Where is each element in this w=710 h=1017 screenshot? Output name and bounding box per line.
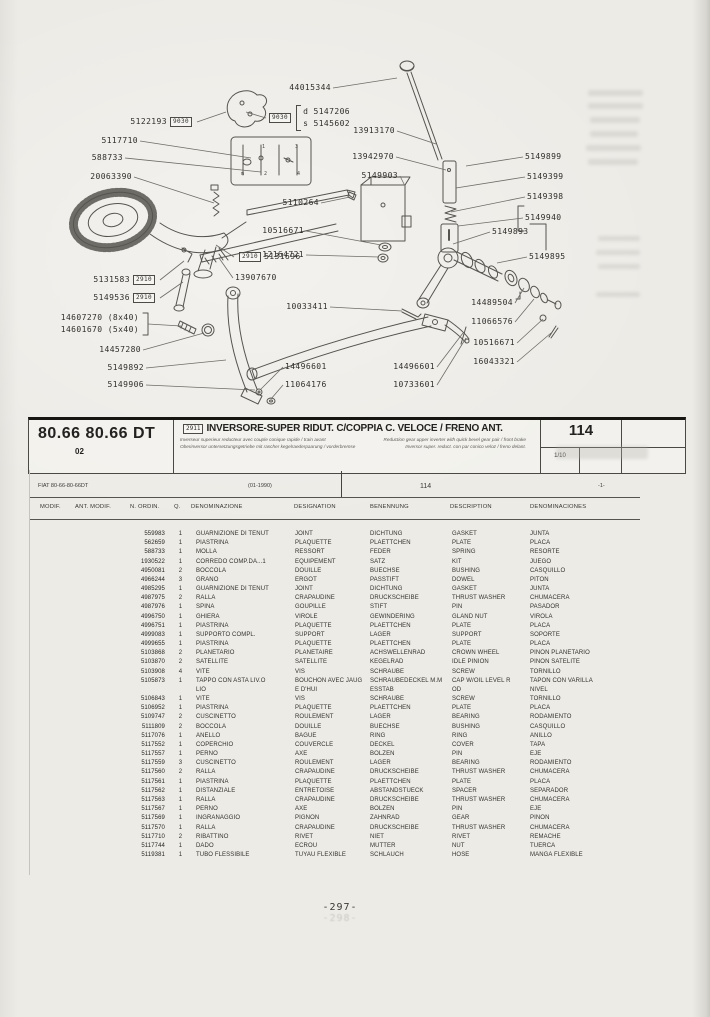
cell-benennung: LAGER xyxy=(370,759,452,768)
cell-n-ordin: 5117567 xyxy=(30,805,165,814)
cell-benennung: NIET xyxy=(370,833,452,842)
cell-n-ordin: 4985295 xyxy=(30,585,165,594)
cell-denominaciones: JUNTA xyxy=(530,585,684,594)
part-label-10516671: 10516671 xyxy=(473,338,515,348)
cell-denominazione: PERNO xyxy=(196,750,295,759)
cell-designation: PLAQUETTE xyxy=(295,640,370,649)
cell-denominaciones: PLACA xyxy=(530,622,684,631)
cell-denominazione: RALLA xyxy=(196,594,295,603)
cell-n-ordin: 559983 xyxy=(30,530,165,539)
cell-benennung: GEWINDERING xyxy=(370,613,452,622)
cell-n-ordin: 4950081 xyxy=(30,567,165,576)
cell-n-ordin: 4966244 xyxy=(30,576,165,585)
cell-n-ordin: 5117570 xyxy=(30,824,165,833)
subtitle-es: Inversor super. reduct. con par conico v… xyxy=(405,443,526,450)
subheader-index: -1- xyxy=(598,483,605,489)
cell-n-ordin: 588733 xyxy=(30,548,165,557)
cell-designation: BAGUE xyxy=(295,732,370,741)
cell-qty: 1 xyxy=(165,814,196,823)
part-label-13913170: 13913170 xyxy=(353,126,395,136)
part-label-1: 1 xyxy=(262,142,265,152)
cell-n-ordin: 5111809 xyxy=(30,723,165,732)
part-label-5149906: 5149906 xyxy=(107,380,144,390)
cell-description: PIN xyxy=(452,750,530,759)
cell-denominaciones: EJE xyxy=(530,805,684,814)
cell-benennung: DECKEL xyxy=(370,741,452,750)
cell-denominazione: PIASTRINA xyxy=(196,704,295,713)
cell-designation: ROULEMENT xyxy=(295,713,370,722)
cell-designation: CRAPAUDINE xyxy=(295,594,370,603)
cell-designation: CRAPAUDINE xyxy=(295,824,370,833)
cell-designation: EQUIPEMENT xyxy=(295,558,370,567)
cell-description: THRUST WASHER xyxy=(452,796,530,805)
cell-qty: 1 xyxy=(165,530,196,539)
table-row: 49879761SPINAGOUPILLESTIFTPINPASADOR xyxy=(30,603,684,612)
rule-header xyxy=(30,519,640,520)
part-label-5117710: 5117710 xyxy=(101,136,138,146)
cell-benennung: SCHLAUCH xyxy=(370,851,452,860)
table-row: 51175701RALLACRAPAUDINEDRUCKSCHEIBETHRUS… xyxy=(30,824,684,833)
cell-n-ordin: 4987976 xyxy=(30,603,165,612)
cell-description: BEARING xyxy=(452,759,530,768)
subheader-model: FIAT 80-66-80-66DT xyxy=(38,483,88,489)
column-header-designation: DESIGNATION xyxy=(294,504,336,510)
cell-designation: ERGOT xyxy=(295,576,370,585)
catalog-page: 4401534451221939030511771058873320063390… xyxy=(0,0,710,1017)
cell-qty: 2 xyxy=(165,594,196,603)
cell-designation: RIVET xyxy=(295,833,370,842)
cell-denominaciones: TORNILLO xyxy=(530,668,684,677)
cell-benennung: DICHTUNG xyxy=(370,585,452,594)
cell-denominaciones: TAPA xyxy=(530,741,684,750)
table-row: 51118092BOCCOLADOUILLEBUECHSEBUSHINGCASQ… xyxy=(30,723,684,732)
cell-denominaciones: PINON xyxy=(530,814,684,823)
ghost-smudge xyxy=(596,292,640,297)
cell-description: SUPPORT xyxy=(452,631,530,640)
cell-description: SCREW xyxy=(452,695,530,704)
cell-benennung: BOLZEN xyxy=(370,750,452,759)
table-row: 49996551PIASTRINAPLAQUETTEPLAETTCHENPLAT… xyxy=(30,640,684,649)
cell-denominazione: PIASTRINA xyxy=(196,539,295,548)
cell-benennung: BUECHSE xyxy=(370,723,452,732)
cell-description: NUT xyxy=(452,842,530,851)
cell-qty: 1 xyxy=(165,539,196,548)
bracket-casting-drawing xyxy=(227,91,266,127)
cell-designation: SATELLITE xyxy=(295,658,370,667)
ghost-smudge xyxy=(586,145,641,151)
cell-designation: AXE xyxy=(295,805,370,814)
cell-benennung: PLAETTCHEN xyxy=(370,704,452,713)
cell-description: PIN xyxy=(452,603,530,612)
cell-n-ordin: 5117560 xyxy=(30,768,165,777)
cell-denominazione: VITE xyxy=(196,695,295,704)
table-row: 51177102RIBATTINORIVETNIETRIVETREMACHE xyxy=(30,833,684,842)
cell-description: THRUST WASHER xyxy=(452,824,530,833)
table-row: 49967511PIASTRINAPLAQUETTEPLAETTCHENPLAT… xyxy=(30,622,684,631)
cell-denominazione: PIASTRINA xyxy=(196,622,295,631)
part-label-5149892: 5149892 xyxy=(107,363,144,373)
table-header: MODIF.ANT. MODIF.N. ORDIN.Q.DENOMINAZION… xyxy=(30,504,684,514)
cell-denominaciones: PINON SATELITE xyxy=(530,658,684,667)
cell-designation: PLAQUETTE xyxy=(295,622,370,631)
cell-qty: 3 xyxy=(165,759,196,768)
table-row: 51039084VITEVISSCHRAUBESCREWTORNILLO xyxy=(30,668,684,677)
column-tick xyxy=(341,471,342,497)
cell-qty: 1 xyxy=(165,824,196,833)
ghost-smudge xyxy=(590,117,640,123)
cell-description: HOSE xyxy=(452,851,530,860)
part-label-13907670: 13907670 xyxy=(235,273,277,283)
cell-denominazione: PERNO xyxy=(196,805,295,814)
rule-top xyxy=(30,497,640,498)
cell-description: SPACER xyxy=(452,787,530,796)
gear-sleeve-drawing xyxy=(68,185,157,254)
cell-denominaciones: ANILLO xyxy=(530,732,684,741)
cell-denominaciones: MANGA FLEXIBLE xyxy=(530,851,684,860)
cell-benennung: LAGER xyxy=(370,631,452,640)
cell-benennung: SATZ xyxy=(370,558,452,567)
cell-benennung: BOLZEN xyxy=(370,805,452,814)
cell-description: CROWN WHEEL xyxy=(452,649,530,658)
part-label-5149903: 5149903 xyxy=(361,171,398,181)
part-label-11064176: 11064176 xyxy=(285,380,327,390)
cell-designation: ECROU xyxy=(295,842,370,851)
part-label-588733: 588733 xyxy=(92,153,123,163)
cell-qty: 1 xyxy=(165,558,196,567)
part-label-13942970: 13942970 xyxy=(352,152,394,162)
cell-n-ordin: 5103868 xyxy=(30,649,165,658)
table-row: 51175602RALLACRAPAUDINEDRUCKSCHEIBETHRUS… xyxy=(30,768,684,777)
cell-description: SCREW xyxy=(452,668,530,677)
cell-denominaciones: PASADOR xyxy=(530,603,684,612)
cell-designation: VIROLE xyxy=(295,613,370,622)
part-label-11066576: 11066576 xyxy=(471,317,513,327)
ghost-smudge xyxy=(598,264,640,269)
cell-denominaciones: PLACA xyxy=(530,640,684,649)
cell-description: THRUST WASHER xyxy=(452,768,530,777)
cell-description: DOWEL xyxy=(452,576,530,585)
cell-n-ordin: 4987975 xyxy=(30,594,165,603)
table-row: 51175571PERNOAXEBOLZENPINEJE xyxy=(30,750,684,759)
cell-benennung: ABSTANDSTUECK xyxy=(370,787,452,796)
table-row: 51170761ANELLOBAGUERINGRINGANILLO xyxy=(30,732,684,741)
cell-benennung: SCHRAUBE xyxy=(370,695,452,704)
cell-description: BUSHING xyxy=(452,723,530,732)
cell-designation: DOUILLE xyxy=(295,723,370,732)
table-row: 51058731TAPPO CON ASTA LIV.O LIOBOUCHON … xyxy=(30,677,684,695)
cell-designation: CRAPAUDINE xyxy=(295,768,370,777)
variant-bracket xyxy=(296,105,301,131)
ref-box-2910: 2910 xyxy=(239,252,261,262)
cell-benennung: FEDER xyxy=(370,548,452,557)
column-header-benennung: BENENNUNG xyxy=(370,504,409,510)
cell-qty: 1 xyxy=(165,622,196,631)
cell-n-ordin: 5117552 xyxy=(30,741,165,750)
subheader-date: (01-1990) xyxy=(248,483,272,489)
cell-denominazione: CUSCINETTO xyxy=(196,759,295,768)
table-row: 51069521PIASTRINAPLAQUETTEPLAETTCHENPLAT… xyxy=(30,704,684,713)
cell-qty: 1 xyxy=(165,805,196,814)
cell-designation: SUPPORT xyxy=(295,631,370,640)
ghost-smudge xyxy=(588,159,638,165)
cell-n-ordin: 5117557 xyxy=(30,750,165,759)
cell-denominazione: MOLLA xyxy=(196,548,295,557)
cell-benennung: ZAHNRAD xyxy=(370,814,452,823)
subtitle-en: Reduction gear upper inverter with quick… xyxy=(383,436,526,443)
cell-qty: 1 xyxy=(165,778,196,787)
cell-n-ordin: 5106843 xyxy=(30,695,165,704)
table-row: 49662443GRANOERGOTPASSTIFTDOWELPITON xyxy=(30,576,684,585)
part-label-146016705x40: 14601670 (5x40) xyxy=(61,325,139,335)
parts-table: 5599831GUARNIZIONE DI TENUTJOINTDICHTUNG… xyxy=(30,530,684,860)
ref-box-2910: 2910 xyxy=(133,293,155,303)
cell-n-ordin: 5117569 xyxy=(30,814,165,823)
cell-qty: 1 xyxy=(165,796,196,805)
cell-denominazione: RALLA xyxy=(196,796,295,805)
cell-description: GLAND NUT xyxy=(452,613,530,622)
cell-benennung: PLAETTCHEN xyxy=(370,778,452,787)
cell-denominazione: SUPPORTO COMPL. xyxy=(196,631,295,640)
cell-benennung: PLAETTCHEN xyxy=(370,539,452,548)
cell-description: PLATE xyxy=(452,640,530,649)
cell-designation: TUYAU FLEXIBLE xyxy=(295,851,370,860)
part-label-5110264: 5110264 xyxy=(282,198,319,208)
cell-description: BUSHING xyxy=(452,567,530,576)
cell-qty: 2 xyxy=(165,567,196,576)
table-row: 51175593CUSCINETTOROULEMENTLAGERBEARINGR… xyxy=(30,759,684,768)
cell-denominaciones: RODAMIENTO xyxy=(530,713,684,722)
table-row: 51068431VITEVISSCHRAUBESCREWTORNILLO xyxy=(30,695,684,704)
cell-benennung: KEGELRAD xyxy=(370,658,452,667)
cell-qty: 1 xyxy=(165,732,196,741)
ref-box-2910: 2910 xyxy=(133,275,155,285)
ghost-smudge xyxy=(588,90,643,96)
cell-denominazione: PLANETARIO xyxy=(196,649,295,658)
cell-denominazione: SATELLITE xyxy=(196,658,295,667)
part-label-14489504: 14489504 xyxy=(471,298,513,308)
cell-benennung: PASSTIFT xyxy=(370,576,452,585)
cell-denominazione: GHIERA xyxy=(196,613,295,622)
cell-n-ordin: 5106952 xyxy=(30,704,165,713)
cell-denominazione: DISTANZIALE xyxy=(196,787,295,796)
table-row: 51038682PLANETARIOPLANETAIREACHSWELLENRA… xyxy=(30,649,684,658)
subheader-page: 114 xyxy=(420,483,431,490)
cell-designation: DOUILLE xyxy=(295,567,370,576)
part-label-14496601: 14496601 xyxy=(393,362,435,372)
cell-qty: 4 xyxy=(165,668,196,677)
part-label-5149899: 5149899 xyxy=(525,152,562,162)
cell-benennung: STIFT xyxy=(370,603,452,612)
column-header-antmodif: ANT. MODIF. xyxy=(75,504,111,510)
part-label-146072708x40: 14607270 (8x40) xyxy=(61,313,139,323)
column-header-modif: MODIF. xyxy=(40,504,61,510)
cell-designation: PLAQUETTE xyxy=(295,778,370,787)
cell-denominazione: SPINA xyxy=(196,603,295,612)
cell-designation: JOINT xyxy=(295,585,370,594)
cell-n-ordin: 562659 xyxy=(30,539,165,548)
cell-description: GASKET xyxy=(452,530,530,539)
table-row: 51175691INGRANAGGIOPIGNONZAHNRADGEARPINO… xyxy=(30,814,684,823)
cell-designation: VIS xyxy=(295,695,370,704)
cell-denominazione: DADO xyxy=(196,842,295,851)
cell-qty: 1 xyxy=(165,741,196,750)
cell-denominaciones: EJE xyxy=(530,750,684,759)
cell-description: COVER xyxy=(452,741,530,750)
cell-qty: 2 xyxy=(165,649,196,658)
table-row: 49852951GUARNIZIONE DI TENUTJOINTDICHTUN… xyxy=(30,585,684,594)
cell-denominazione: BOCCOLA xyxy=(196,723,295,732)
cell-description: RIVET xyxy=(452,833,530,842)
cell-qty: 1 xyxy=(165,677,196,695)
column-header-denominaciones: DENOMINACIONES xyxy=(530,504,586,510)
cell-designation: PLAQUETTE xyxy=(295,539,370,548)
cell-qty: 1 xyxy=(165,842,196,851)
cell-denominaciones: PITON xyxy=(530,576,684,585)
cell-benennung: LAGER xyxy=(370,713,452,722)
table-row: 51038702SATELLITESATELLITEKEGELRADIDLE P… xyxy=(30,658,684,667)
cell-description: CAP W/OIL LEVEL R OD xyxy=(452,677,530,695)
part-label-3: 3 xyxy=(295,142,298,152)
subheader-row: FIAT 80-66-80-66DT (01-1990) 114 -1- xyxy=(0,483,710,493)
cell-denominaciones: VIROLA xyxy=(530,613,684,622)
column-header-q: Q. xyxy=(174,504,181,510)
cell-qty: 1 xyxy=(165,695,196,704)
cell-n-ordin: 4996750 xyxy=(30,613,165,622)
cell-denominazione: TUBO FLESSIBILE xyxy=(196,851,295,860)
model-code: 02 xyxy=(75,447,84,456)
shift-fork-drawing xyxy=(150,222,246,278)
column-header-denominazione: DENOMINAZIONE xyxy=(191,504,243,510)
cell-description: THRUST WASHER xyxy=(452,594,530,603)
cell-qty: 1 xyxy=(165,585,196,594)
cell-designation: JOINT xyxy=(295,530,370,539)
part-label-10516671: 10516671 xyxy=(262,226,304,236)
cell-benennung: RING xyxy=(370,732,452,741)
part-label-m: m xyxy=(241,169,244,179)
cell-description: SPRING xyxy=(452,548,530,557)
part-label-5149536: 51495362910 xyxy=(93,293,158,303)
cell-designation: GOUPILLE xyxy=(295,603,370,612)
part-label-2: 2 xyxy=(264,169,267,179)
cell-denominaciones: PLACA xyxy=(530,778,684,787)
cell-designation: ROULEMENT xyxy=(295,759,370,768)
cell-n-ordin: 5103870 xyxy=(30,658,165,667)
cell-qty: 1 xyxy=(165,787,196,796)
ghost-smudge xyxy=(598,236,640,241)
cell-qty: 1 xyxy=(165,613,196,622)
variant-part-group: 9030 d 5147206 s 5145602 xyxy=(266,105,350,131)
part-label-16043321: 16043321 xyxy=(473,357,515,367)
part-label-5149895: 5149895 xyxy=(529,252,566,262)
part-label-14496601: 14496601 xyxy=(285,362,327,372)
valve-body-drawing xyxy=(348,177,411,262)
cell-benennung: PLAETTCHEN xyxy=(370,622,452,631)
table-number: 114 xyxy=(541,422,621,439)
cell-denominazione: INGRANAGGIO xyxy=(196,814,295,823)
cell-description: GEAR xyxy=(452,814,530,823)
part-label-4: 4 xyxy=(297,169,300,179)
cell-qty: 2 xyxy=(165,713,196,722)
cell-denominazione: PIASTRINA xyxy=(196,778,295,787)
cell-designation: AXE xyxy=(295,750,370,759)
ref-box-2911: 2911 xyxy=(183,424,203,434)
table-row: 51175611PIASTRINAPLAQUETTEPLAETTCHENPLAT… xyxy=(30,778,684,787)
cell-qty: 1 xyxy=(165,704,196,713)
cell-description: KIT xyxy=(452,558,530,567)
cell-denominaciones: TORNILLO xyxy=(530,695,684,704)
cell-qty: 1 xyxy=(165,851,196,860)
page-number: -297- xyxy=(0,902,680,913)
ghost-smudge xyxy=(588,103,643,109)
cell-denominaciones: JUEGO xyxy=(530,558,684,567)
cell-denominaciones: RODAMIENTO xyxy=(530,759,684,768)
subtitle-fr: Inverseur superieur reducteur avec coupl… xyxy=(180,436,326,443)
cell-benennung: MUTTER xyxy=(370,842,452,851)
cell-n-ordin: 5117710 xyxy=(30,833,165,842)
cell-denominazione: CORREDO COMP.DA...1 xyxy=(196,558,295,567)
cell-description: GASKET xyxy=(452,585,530,594)
part-label-5131696: 29105131696 xyxy=(236,252,301,262)
cell-designation: BOUCHON AVEC JAUG E D'HUI xyxy=(295,677,370,695)
cell-denominazione: GRANO xyxy=(196,576,295,585)
table-row: 51175521COPERCHIOCOUVERCLEDECKELCOVERTAP… xyxy=(30,741,684,750)
table-row: 5626591PIASTRINAPLAQUETTEPLAETTCHENPLATE… xyxy=(30,539,684,548)
table-row: 51175621DISTANZIALEENTRETOISEABSTANDSTUE… xyxy=(30,787,684,796)
cell-description: PLATE xyxy=(452,778,530,787)
table-row: 51175631RALLACRAPAUDINEDRUCKSCHEIBETHRUS… xyxy=(30,796,684,805)
part-label-10033411: 10033411 xyxy=(286,302,328,312)
cell-qty: 1 xyxy=(165,750,196,759)
table-row: 49500812BOCCOLADOUILLEBUECHSEBUSHINGCASQ… xyxy=(30,567,684,576)
model-cell: 80.66 80.66 DT 02 xyxy=(29,420,173,473)
table-row: 19305221CORREDO COMP.DA...1EQUIPEMENTSAT… xyxy=(30,558,684,567)
cell-description: IDLE PINION xyxy=(452,658,530,667)
cell-denominaciones: TUERCA xyxy=(530,842,684,851)
cell-denominaciones: JUNTA xyxy=(530,530,684,539)
part-label-5149940: 5149940 xyxy=(525,213,562,223)
column-header-nordin: N. ORDIN. xyxy=(130,504,160,510)
column-header-description: DESCRIPTION xyxy=(450,504,492,510)
part-label-5122193: 51221939030 xyxy=(130,117,195,127)
subtitle-de: Oberinversor untersetzungsgetriebe mit r… xyxy=(180,443,355,450)
cell-benennung: DRUCKSCHEIBE xyxy=(370,594,452,603)
ref-box-9030: 9030 xyxy=(170,117,192,127)
cell-denominazione: CUSCINETTO xyxy=(196,713,295,722)
cell-qty: 1 xyxy=(165,640,196,649)
cell-n-ordin: 4999655 xyxy=(30,640,165,649)
cell-denominaciones: CHUMACERA xyxy=(530,594,684,603)
table-row: 51193811TUBO FLESSIBILETUYAU FLEXIBLESCH… xyxy=(30,851,684,860)
cell-denominazione: PIASTRINA xyxy=(196,640,295,649)
cell-denominazione: COPERCHIO xyxy=(196,741,295,750)
cell-n-ordin: 4996751 xyxy=(30,622,165,631)
cell-denominazione: VITE xyxy=(196,668,295,677)
cell-designation: PLAQUETTE xyxy=(295,704,370,713)
cell-denominazione: RIBATTINO xyxy=(196,833,295,842)
cell-designation: COUVERCLE xyxy=(295,741,370,750)
cell-benennung: DICHTUNG xyxy=(370,530,452,539)
cell-n-ordin: 5103908 xyxy=(30,668,165,677)
cell-denominaciones: REMACHE xyxy=(530,833,684,842)
cell-n-ordin: 5105873 xyxy=(30,677,165,695)
cell-qty: 1 xyxy=(165,631,196,640)
section-title: INVERSORE-SUPER RIDUT. C/COPPIA C. VELOC… xyxy=(206,423,502,434)
cell-qty: 1 xyxy=(165,548,196,557)
table-row: 49967501GHIERAVIROLEGEWINDERINGGLAND NUT… xyxy=(30,613,684,622)
cell-qty: 3 xyxy=(165,576,196,585)
cell-qty: 2 xyxy=(165,768,196,777)
cell-n-ordin: 5117076 xyxy=(30,732,165,741)
